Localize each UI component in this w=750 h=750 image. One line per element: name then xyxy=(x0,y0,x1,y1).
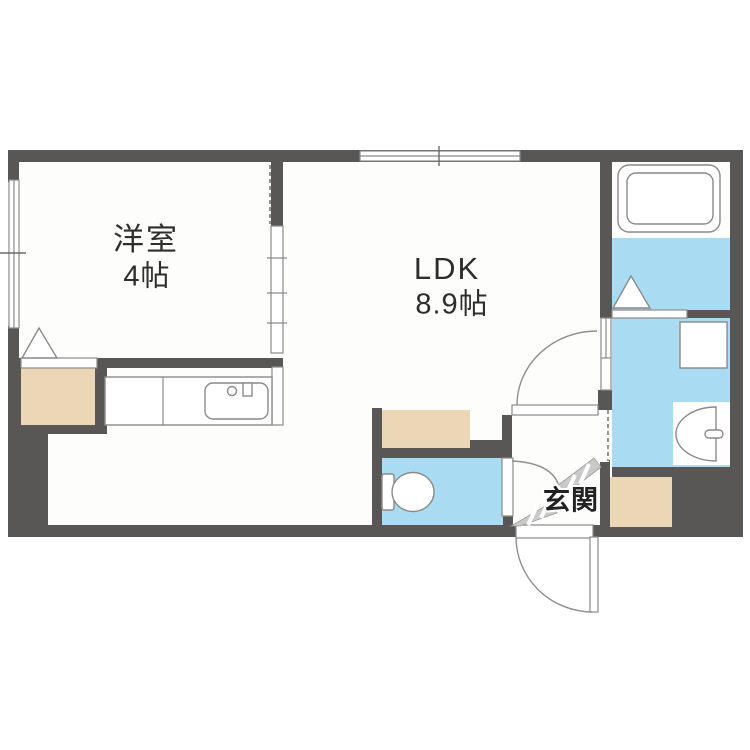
label-western-room-name: 洋室 xyxy=(113,222,179,258)
toilet-door xyxy=(502,458,513,516)
entrance-door xyxy=(516,525,598,612)
bathtub xyxy=(618,165,720,232)
bath-threshold xyxy=(612,310,687,318)
closet xyxy=(21,368,95,425)
storage xyxy=(382,410,470,448)
washing-machine-pan xyxy=(680,322,727,368)
label-entrance: 玄関 xyxy=(543,485,599,516)
wash-basin xyxy=(673,402,730,465)
floorplan-canvas: 洋室 4帖 LDK 8.9帖 玄関 xyxy=(0,0,750,750)
closet-opening xyxy=(21,358,97,368)
kitchen-counter xyxy=(105,377,272,425)
washroom-opening xyxy=(600,410,609,462)
floorplan-drawing xyxy=(0,0,750,750)
entrance-porch xyxy=(610,477,672,527)
toilet xyxy=(382,473,434,512)
kitchen-faucet xyxy=(228,387,237,396)
washroom-sliding-door xyxy=(601,318,611,390)
label-ldk-size: 8.9帖 xyxy=(415,288,488,321)
label-ldk-name: LDK xyxy=(414,251,480,287)
label-western-room-size: 4帖 xyxy=(123,260,170,293)
counter-side-panel xyxy=(272,367,283,425)
